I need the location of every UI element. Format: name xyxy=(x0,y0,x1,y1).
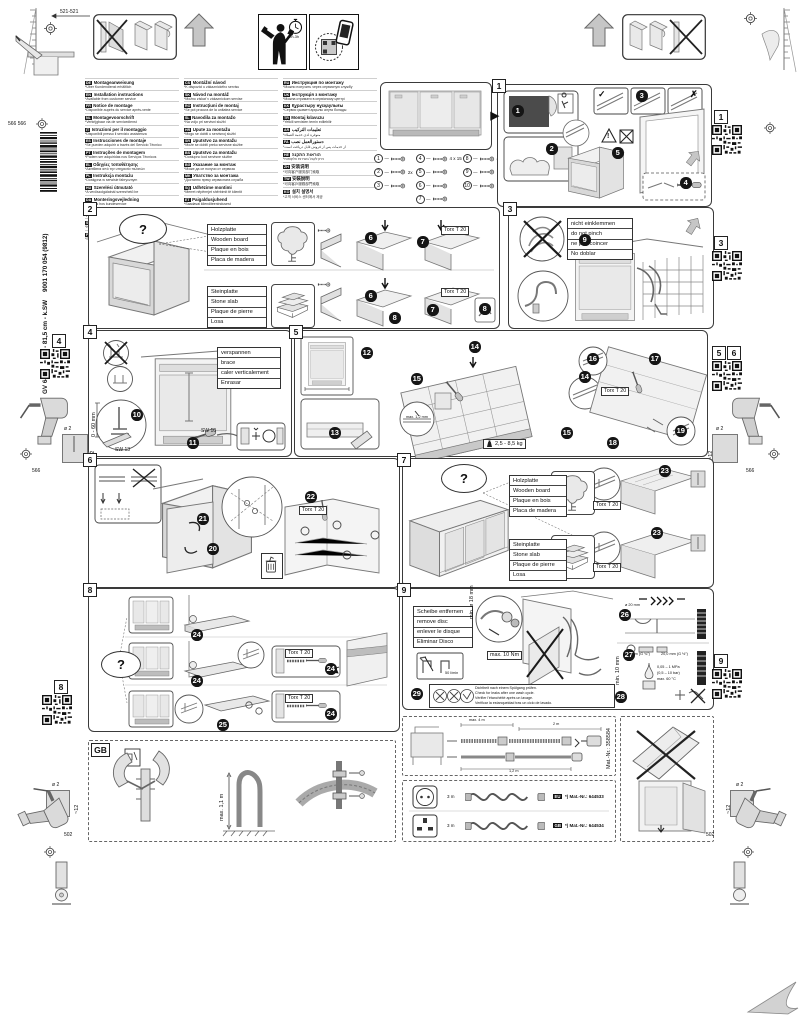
wood-icon-box xyxy=(271,222,315,266)
step-10: 10 xyxy=(131,409,143,421)
product-code-vertical: GV 640 B VolI-I - 81,5 cm - k.SW xyxy=(42,300,49,394)
flow-label: 50 l/min xyxy=(445,671,458,675)
language-flag-tag: en xyxy=(85,93,92,97)
language-entry: deMontageanweisung *Über Kundendienst er… xyxy=(85,78,179,89)
qr-label-4: 4 xyxy=(52,334,66,348)
language-entry: tw安裝說明 *可向客戶服務部門索取 xyxy=(283,175,377,187)
panel-step6-door-adjust: 6 21 20 22 To xyxy=(88,458,400,588)
language-entry: slNavodila za montažo *Na voljo pri serv… xyxy=(184,113,278,124)
install-time-label: ~2h-3h xyxy=(287,35,299,39)
language-flag-tag: ar xyxy=(283,128,290,132)
qr-label-8: 8 xyxy=(54,680,68,694)
warning-icon: ! xyxy=(607,133,609,140)
step-6b: 6 xyxy=(365,290,377,302)
two-person-time-box: ~2h-3h xyxy=(258,14,307,70)
cord-length-eu: 3 m xyxy=(447,794,455,799)
d12-bl: ~12 xyxy=(74,805,80,814)
installation-sheet-page: 521-521 ~2h-3h 566 566 xyxy=(0,0,802,1022)
gb-drain-drawing xyxy=(89,741,395,841)
registration-target-br xyxy=(742,846,754,858)
power-cord-box: 3 m EU *) Mat.-Nr.: 644533 3 m GB *) Mat… xyxy=(402,780,616,842)
registration-target-tr xyxy=(744,12,757,25)
drill-dia-label: ø 2 xyxy=(64,426,71,432)
hose-extension-box: max. 4 m 2 m 1,2 m Mat.-Nr.: 358584 xyxy=(402,716,616,776)
step-15: 15 xyxy=(411,373,423,385)
step-5: 5 xyxy=(612,147,624,159)
language-flag-tag: ko xyxy=(283,190,290,194)
language-entry: bgУказание за монтаж *Може да се получи … xyxy=(184,160,278,171)
parts-list: 1— 2— 2x 3— 4— 4 x 15 5— xyxy=(374,152,500,206)
no-panel-box xyxy=(620,716,714,842)
hose-mat-nr: Mat.-Nr.: 358584 xyxy=(606,728,612,769)
language-entry: mkУпатство за монтажа *Достапно преку се… xyxy=(184,172,278,183)
parts-item: 8— 4 x 15 xyxy=(463,152,502,166)
panel-step1-unpack: 1 1 xyxy=(497,84,712,207)
torx-t20-label-2: Torx T 20 xyxy=(441,288,469,297)
question-cloud: ? xyxy=(119,214,167,244)
step-17: 17 xyxy=(649,353,661,365)
step-24c: 24 xyxy=(325,663,337,675)
parts-item: 1— xyxy=(374,152,413,166)
qr-label-1: 1 xyxy=(714,110,728,124)
panel-step4-level-feet: 4 verspannenbracecaler verticalementEnra… xyxy=(88,330,292,457)
qr-code-9 xyxy=(712,669,742,699)
check-icon: ✓ xyxy=(598,89,606,100)
stone-icon-box xyxy=(271,284,315,328)
pencil-table-sketch xyxy=(14,34,80,78)
step-26: 26 xyxy=(619,609,631,621)
panel-step9-water-connection: 9 xyxy=(402,588,714,710)
step-16: 16 xyxy=(587,353,599,365)
cord-length-gb: 3 m xyxy=(447,823,455,828)
gb-drain-panel: GB max. 1,1 m xyxy=(88,740,396,842)
step-11: 11 xyxy=(187,437,199,449)
roller-stand-icon-br xyxy=(726,860,754,906)
torque-label: max. 10 Nm xyxy=(487,651,522,660)
language-entry: ko설치 설명서 *고객 서비스 센터에서 제공 xyxy=(283,187,377,199)
step-9: 9 xyxy=(579,234,591,246)
step-12: 12 xyxy=(361,347,373,359)
step-18: 18 xyxy=(607,437,619,449)
step-14b: 14 xyxy=(579,371,591,383)
gap-max-label: max. 1,2 mm xyxy=(401,415,433,419)
language-entry: csMontážní návod *K dispozici u zákaznic… xyxy=(184,78,278,89)
gb-tag: GB xyxy=(553,823,562,828)
step-4: 4 xyxy=(680,177,692,189)
torx-t20-label: Torx T 20 xyxy=(441,226,469,235)
pressure2-label: (0,5 – 10 bar) xyxy=(657,671,680,675)
step-25: 25 xyxy=(217,719,229,731)
step-2: 2 xyxy=(546,143,558,155)
dispose-box xyxy=(261,553,283,579)
language-entry: esInstrucciones de montaje *Se pueden ad… xyxy=(85,137,179,148)
language-flag-tag: tw xyxy=(283,177,291,181)
thread-b-label: 20,0 mm (G ½") xyxy=(661,652,688,656)
cross-icon: ✗ xyxy=(690,89,698,100)
step-7: 7 xyxy=(417,236,429,248)
qr-label-5: 5 xyxy=(712,346,726,360)
panel-step7-worktop-type: 1 7 ? HolzplatteWooden boardPlaque en bo… xyxy=(402,458,714,588)
pointer-triangle: ▶ xyxy=(491,109,499,122)
language-flag-tag: uk xyxy=(283,93,290,97)
parts-item: 5— xyxy=(416,166,460,180)
d502-br: 502 xyxy=(706,832,714,838)
torx-t20-label-p6: Torx T 20 xyxy=(299,506,327,515)
eu-mat-nr: *) Mat.-Nr.: 644533 xyxy=(565,794,604,799)
panel-2-number: 2 xyxy=(83,202,97,216)
language-entry: ptInstruções de montagem *Podem ser adqu… xyxy=(85,148,179,159)
qr-code-1 xyxy=(712,125,742,155)
language-entry: itIstruzioni per il montaggio *Disponibi… xyxy=(85,125,179,136)
min10-label: min. 10 mm xyxy=(615,656,621,685)
part-icon xyxy=(390,169,406,175)
registration-target-left-mid xyxy=(20,448,32,460)
roller-stand-icon-bl xyxy=(48,860,76,906)
step-28: 28 xyxy=(615,691,627,703)
torx-t20-label-p5: Torx T 20 xyxy=(601,387,629,396)
hose-max-length: max. 4 m xyxy=(469,718,485,722)
language-entry: plInstrukcja montażu *Dostępna w serwisi… xyxy=(85,172,179,183)
question-cloud-p7: ? xyxy=(441,464,487,493)
part-icon xyxy=(432,183,448,189)
registration-target-right-mid xyxy=(768,448,780,460)
language-entry: trMontaj kılavuzu *Yetkili servisten tem… xyxy=(283,113,377,124)
registration-target-bl xyxy=(44,846,56,858)
tree-icon xyxy=(274,225,311,263)
leak-check-icons xyxy=(432,688,472,704)
parts-item: 10— xyxy=(463,179,502,193)
stone-label-stack-p7: SteinplatteStone slabPlaque de pierreLos… xyxy=(509,539,567,581)
hose-extension-drawing xyxy=(403,717,615,775)
gb-mat-nr: *) Mat.-Nr.: 644534 xyxy=(565,823,604,828)
brace-label-stack: verspannenbracecaler verticalementEnrasa… xyxy=(217,347,281,389)
dia2-br: ø 2 xyxy=(736,782,743,788)
panel-5-number: 5 xyxy=(289,325,303,339)
step-1: 1 xyxy=(512,105,524,117)
hose-2m: 2 m xyxy=(553,722,559,726)
language-entry: ukІнструкція з монтажу *Можна отримати в… xyxy=(283,90,377,101)
language-entry: roInstrucţiuni de montaj *Se pot procura… xyxy=(184,101,278,112)
dim-521: 521-521 xyxy=(60,9,78,15)
stone-label-stack: SteinplatteStone slabPlaque de pierreLos… xyxy=(207,286,267,328)
page-curl xyxy=(746,978,800,1016)
dia18-label: min. ø 18 mm xyxy=(469,585,475,619)
d502-bl: 502 xyxy=(64,832,72,838)
wood-label-stack: HolzplatteWooden boardPlaque en boisPlac… xyxy=(207,224,267,266)
gb-standpipe-height: max. 1,1 m xyxy=(219,794,225,821)
panel-1-drawing xyxy=(498,85,711,206)
dia20-label: ø 20 mm xyxy=(625,603,640,607)
panel-8-number: 8 xyxy=(83,583,97,597)
panel-step5-door-panel: 5 xyxy=(294,330,708,457)
trash-icon xyxy=(264,555,278,575)
language-entry: etPaigaldusjuhend *Saadaval klienditeeni… xyxy=(184,195,278,206)
language-entry: zh安装说明 *可向客户服务部门索取 xyxy=(283,162,377,174)
language-entry: frNotice de montage *Disponible auprès d… xyxy=(85,101,179,112)
push-in-arrow-icon xyxy=(184,12,214,48)
language-flag-tag: fa xyxy=(283,140,290,144)
eu-tag: EU xyxy=(553,794,562,799)
registration-target-left xyxy=(36,118,48,130)
barcode xyxy=(40,132,57,192)
thread-a-label: 26,4 mm (G ¾") xyxy=(623,652,650,656)
step-22: 22 xyxy=(305,491,317,503)
push-in-arrow-icon-right xyxy=(584,12,614,48)
question-cloud-p8: ? xyxy=(101,651,141,678)
qr-code-3 xyxy=(712,251,742,281)
language-list-column-3: ruИнструкция по монтажу *Можно получить … xyxy=(283,78,377,200)
panel-6-number: 6 xyxy=(83,453,97,467)
panel-step3-hoses: 3 nicht einklemmendo not pinchne pas coi… xyxy=(508,207,714,329)
step-13: 13 xyxy=(329,427,341,439)
qr-label-9: 9 xyxy=(714,654,728,668)
language-entry: ruИнструкция по монтажу *Можно получить … xyxy=(283,78,377,89)
torx-t20-label-p8b: Torx T 20 xyxy=(285,694,313,703)
cabinet-front-box: ▶ xyxy=(380,82,492,150)
step-14: 14 xyxy=(469,341,481,353)
language-flag-tag: zh xyxy=(283,165,290,169)
dim-566-left: 566 xyxy=(32,468,40,474)
part-icon xyxy=(432,196,448,202)
dim-566-566: 566 566 xyxy=(8,121,26,127)
language-entry: srUputstvo za montažu *Može se dobiti pr… xyxy=(184,137,278,148)
panel-7-number-real: 7 xyxy=(397,453,411,467)
language-entry: daMonteringsvejledning *Kan fås hos kund… xyxy=(85,195,179,206)
sw10-label: SW 10 xyxy=(201,428,216,434)
language-entry: faدستورالعمل نصب *از خدمات پس از فروش قا… xyxy=(283,138,377,150)
dim-566-right: 566 xyxy=(746,468,754,474)
parts-item: 6— xyxy=(416,179,460,193)
parts-item: 4— 4 x 15 xyxy=(416,152,460,166)
panel-6-drawing xyxy=(89,459,399,587)
step-24d: 24 xyxy=(325,708,337,720)
bricks-icon xyxy=(274,289,311,319)
gb-label: GB xyxy=(91,743,110,757)
qr-scan-phone-box xyxy=(309,14,359,70)
language-entry: arتعليمات التركيب *متوفرة لدى خدمة العمل… xyxy=(283,125,377,137)
drill-depth-label-right: ~12 xyxy=(708,451,714,460)
language-entry: sqUdhëzime montimi *Merret nëpërmjet shë… xyxy=(184,183,278,194)
step-19: 19 xyxy=(675,425,687,437)
qr-label-3: 3 xyxy=(714,236,728,250)
temp-label: max. 60 °C xyxy=(657,677,676,681)
language-entry: hrUpute za montažu *Mogu se dobiti u ser… xyxy=(184,125,278,136)
pressure-label: 0,05 – 1 MPa xyxy=(657,665,680,669)
panel-types-crossed-box-right xyxy=(622,14,706,60)
sw13-label: SW 13 xyxy=(115,447,130,453)
parts-item: 2— 2x xyxy=(374,166,413,180)
panel-3-number: 3 xyxy=(503,202,517,216)
leak-check-box: Dichtheit nach einem Spülgang prüfen.Che… xyxy=(429,684,615,708)
step-24b: 24 xyxy=(191,675,203,687)
language-entry: enInstallation instructions *Available f… xyxy=(85,90,179,101)
remove-disc-stack: Scheibe entfernenremove discenlever le d… xyxy=(413,606,473,648)
part-icon xyxy=(390,156,406,162)
step-20: 20 xyxy=(207,543,219,555)
step-21: 21 xyxy=(197,513,209,525)
step-3: 3 xyxy=(636,90,648,102)
registration-target-right xyxy=(764,122,776,134)
step-15b: 15 xyxy=(561,427,573,439)
panel-9-number: 9 xyxy=(397,583,411,597)
range-0-60: 0 - 60 mm xyxy=(91,412,97,437)
parts-item: 7— xyxy=(416,193,460,207)
part-icon xyxy=(432,156,448,162)
language-entry: heהוראות התקנה *ניתן לקבל בשירות הלקוחות xyxy=(283,150,377,161)
panel-step8-plinth: 8 xyxy=(88,588,400,732)
language-entry: skNávod na montáž *Možno získať v zákazn… xyxy=(184,90,278,101)
panel-step2-countertop-fixing: 2 ? HolzplatteWooden boardPlaque en xyxy=(88,207,500,329)
panel-1-number: 1 xyxy=(492,79,506,93)
power-cord-drawing xyxy=(403,781,615,841)
hose-12m: 1,2 m xyxy=(509,769,519,773)
language-entry: bsUputstvo za montažu *Dostupno kod serv… xyxy=(184,148,278,159)
do-not-pinch-stack: nicht einklemmendo not pinchne pas coinc… xyxy=(567,218,633,260)
step-8b: 8 xyxy=(479,303,491,315)
qr-code-8 xyxy=(42,695,72,725)
step-29: 29 xyxy=(411,688,423,700)
qr-label-6: 6 xyxy=(727,346,741,360)
language-entry: elΟδηγίες τοποθέτησης *Διατίθεται από τη… xyxy=(85,160,179,171)
parts-item: 3— xyxy=(374,179,413,193)
part-icon xyxy=(432,169,448,175)
step-23b: 23 xyxy=(651,527,663,539)
parts-item: 9— xyxy=(463,166,502,180)
crop-ruler-top-right xyxy=(752,4,798,76)
language-entry: nlMontagevoorschrift *Verkrijgbaar via d… xyxy=(85,113,179,124)
panel-5-drawing xyxy=(295,331,707,456)
step-24a: 24 xyxy=(191,629,203,641)
stopwatch-icon xyxy=(288,18,303,35)
part-icon xyxy=(390,183,406,189)
drill-hole-mark xyxy=(72,436,76,452)
phone-scanning-qr-icon xyxy=(314,18,354,66)
language-flag-tag: sk xyxy=(184,93,191,97)
step-23: 23 xyxy=(659,465,671,477)
panel-types-crossed-box xyxy=(93,14,177,60)
drill-template-square-right xyxy=(712,434,738,463)
part-icon xyxy=(479,156,495,162)
wood-label-stack-p7: HolzplatteWooden boardPlaque en boisPlac… xyxy=(509,475,567,517)
panel-4-number: 4 xyxy=(83,325,97,339)
registration-target xyxy=(44,22,57,35)
weight-icon xyxy=(486,440,493,448)
drill-dia-label-right: ø 2 xyxy=(716,426,723,432)
language-entry: kkҚұрастыру нұсқаулығы *Сервис қызметі а… xyxy=(283,101,377,112)
cabinet-front-drawing xyxy=(381,83,491,149)
material-number-vertical: 9001 170 054 (9812) xyxy=(42,234,49,292)
language-entry: huSzerelési útmutató *A vevőszolgálatnál… xyxy=(85,183,179,194)
no-panel-drawing xyxy=(621,717,713,841)
d12-br: ~12 xyxy=(726,805,732,814)
step-8: 8 xyxy=(389,312,401,324)
step-7b: 7 xyxy=(427,304,439,316)
part-icon xyxy=(479,169,495,175)
torx-t20-label-p7b: Torx T 20 xyxy=(593,563,621,572)
door-weight-box: 2,5 - 8,5 kg xyxy=(483,439,526,449)
torx-t20-label-p7a: Torx T 20 xyxy=(593,501,621,510)
leak-check-text: Dichtheit nach einem Spülgang prüfen.Che… xyxy=(475,686,552,705)
dia2-bl: ø 2 xyxy=(52,782,59,788)
qr-code-5-6 xyxy=(712,361,742,391)
step-6: 6 xyxy=(365,232,377,244)
qr-code-4 xyxy=(40,349,70,379)
part-icon xyxy=(479,183,495,189)
torx-t20-label-p8a: Torx T 20 xyxy=(285,649,313,658)
